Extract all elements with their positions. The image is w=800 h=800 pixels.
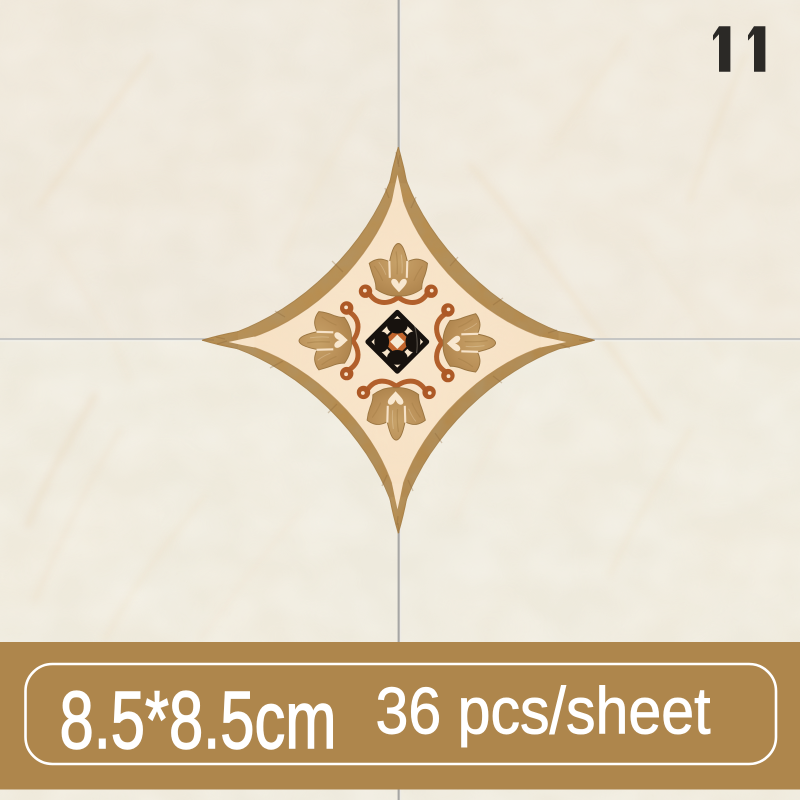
- svg-text:8.5*8.5cm: 8.5*8.5cm: [60, 675, 337, 766]
- svg-text:36 pcs/sheet: 36 pcs/sheet: [376, 675, 711, 748]
